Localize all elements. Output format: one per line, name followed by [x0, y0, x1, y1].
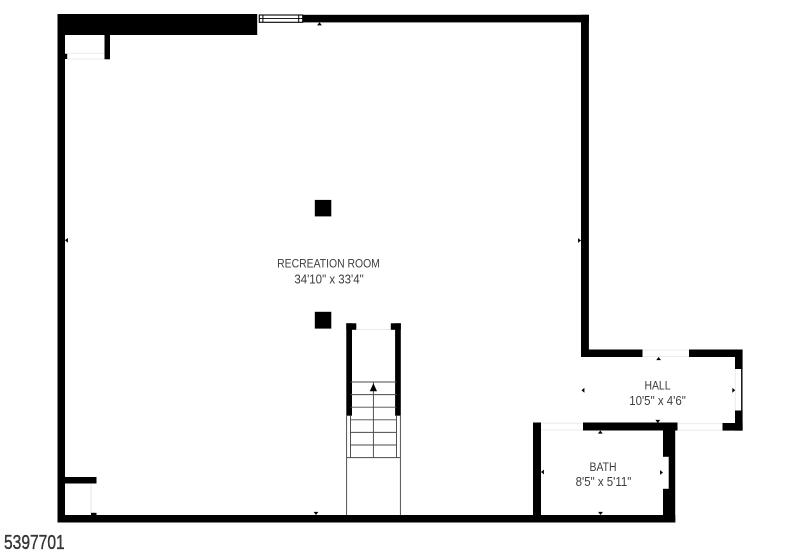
svg-text:8'5" x 5'11": 8'5" x 5'11" [576, 474, 632, 489]
svg-text:HALL: HALL [644, 380, 670, 393]
svg-text:10'5" x 4'6": 10'5" x 4'6" [629, 393, 686, 408]
svg-text:34'10" x 33'4": 34'10" x 33'4" [294, 272, 363, 287]
svg-text:RECREATION ROOM: RECREATION ROOM [277, 258, 380, 271]
svg-text:BATH: BATH [590, 461, 617, 474]
svg-text:5397701: 5397701 [4, 531, 65, 553]
